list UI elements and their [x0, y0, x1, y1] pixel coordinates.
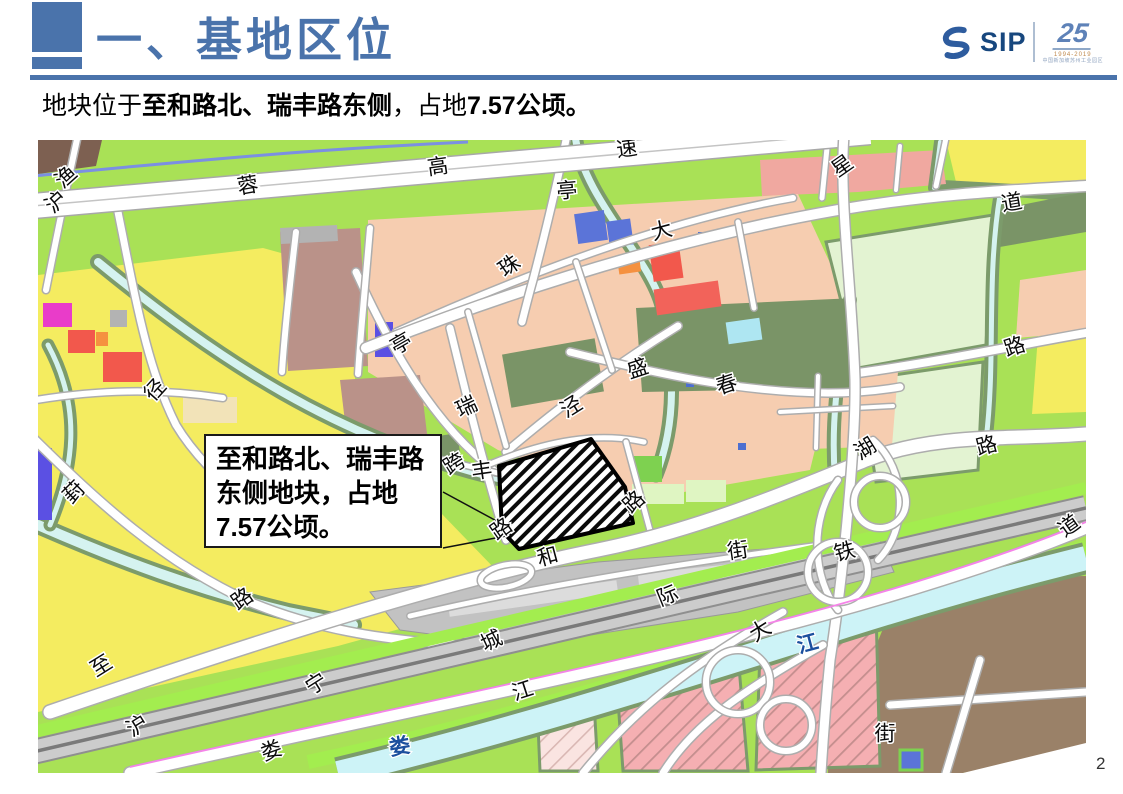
title-accent-bar-icon: [32, 57, 82, 69]
callout-line-3: 7.57公顷。: [216, 510, 436, 544]
road-name-label: 街: [875, 723, 896, 746]
header-divider: [30, 75, 1117, 80]
road-name-label: 蓉: [235, 173, 260, 199]
road-name-label: 街: [726, 538, 750, 564]
slide-subtitle: 地块位于至和路北、瑞丰路东侧，占地7.57公顷。: [42, 86, 591, 122]
anniversary-tagline: 中国新加坡苏州工业园区: [1042, 59, 1103, 64]
road-name-label: 道: [999, 190, 1024, 216]
road-name-label: 亭: [555, 179, 578, 204]
page-title: 一、基地区位: [96, 4, 396, 70]
page-number: 2: [1096, 754, 1105, 774]
sip-logo-text: SIP: [980, 27, 1027, 58]
title-accent-square-icon: [32, 2, 82, 52]
logo-divider: [1033, 22, 1035, 62]
subtitle-road-names: 至和路北、瑞丰路东侧: [142, 92, 392, 120]
road-name-label: 速: [615, 140, 639, 162]
road-name-label: 丰: [470, 458, 494, 484]
callout-line-1: 至和路北、瑞丰路: [216, 442, 436, 476]
anniversary-25-icon: 25: [1052, 20, 1093, 50]
sip-logo: SIP 25 1994-2019 中国新加坡苏州工业园区: [939, 16, 1103, 68]
road-name-label: 高: [426, 154, 450, 180]
subtitle-area: 7.57公顷。: [467, 92, 591, 120]
river-name-label: 娄: [387, 734, 412, 760]
site-callout: 至和路北、瑞丰路 东侧地块，占地 7.57公顷。: [204, 434, 442, 548]
land-use-map: 渔沪蓉高速亭星道珠大亭径葑路瑞泾盛春湖路路跨丰路路和街际城铁道大江至沪宁娄娄江街: [38, 140, 1086, 773]
callout-line-2: 东侧地块，占地: [216, 476, 436, 510]
anniversary-mark: 25 1994-2019 中国新加坡苏州工业园区: [1042, 20, 1103, 64]
subtitle-pre: 地块位于: [42, 92, 142, 120]
sip-swoosh-icon: [939, 25, 973, 59]
subtitle-mid: ，占地: [392, 92, 467, 120]
slide: 一、基地区位 SIP 25 1994-2019 中国新加坡苏州工业园区 地块位于…: [0, 0, 1123, 794]
